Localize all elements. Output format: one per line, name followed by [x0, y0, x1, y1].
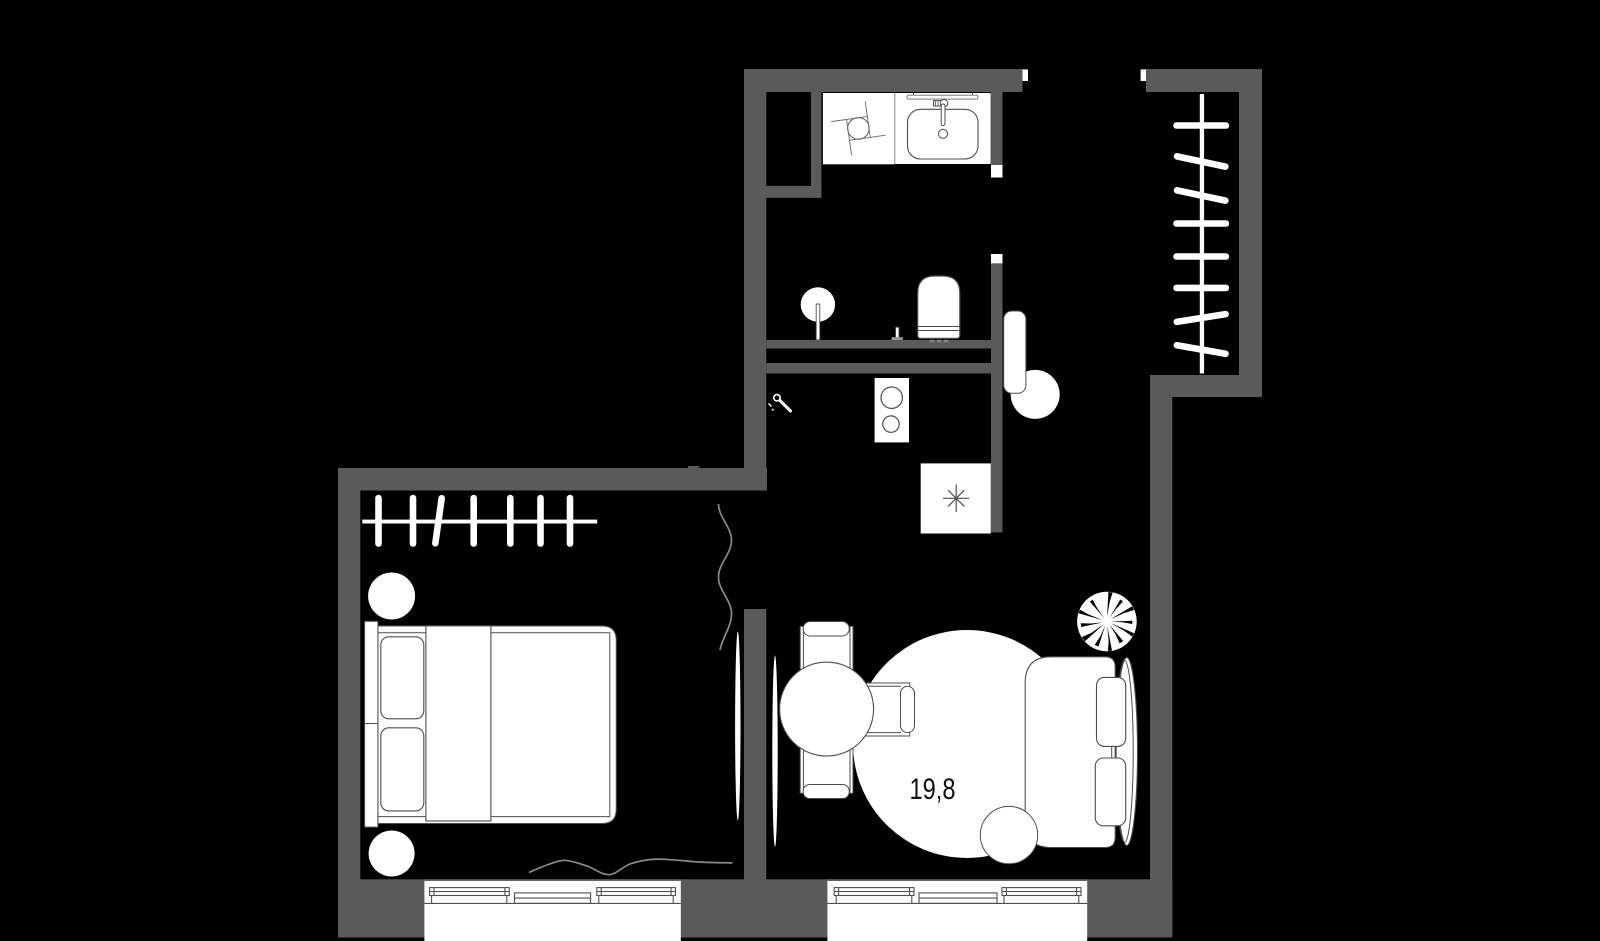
svg-text:19,8: 19,8 — [910, 773, 956, 806]
